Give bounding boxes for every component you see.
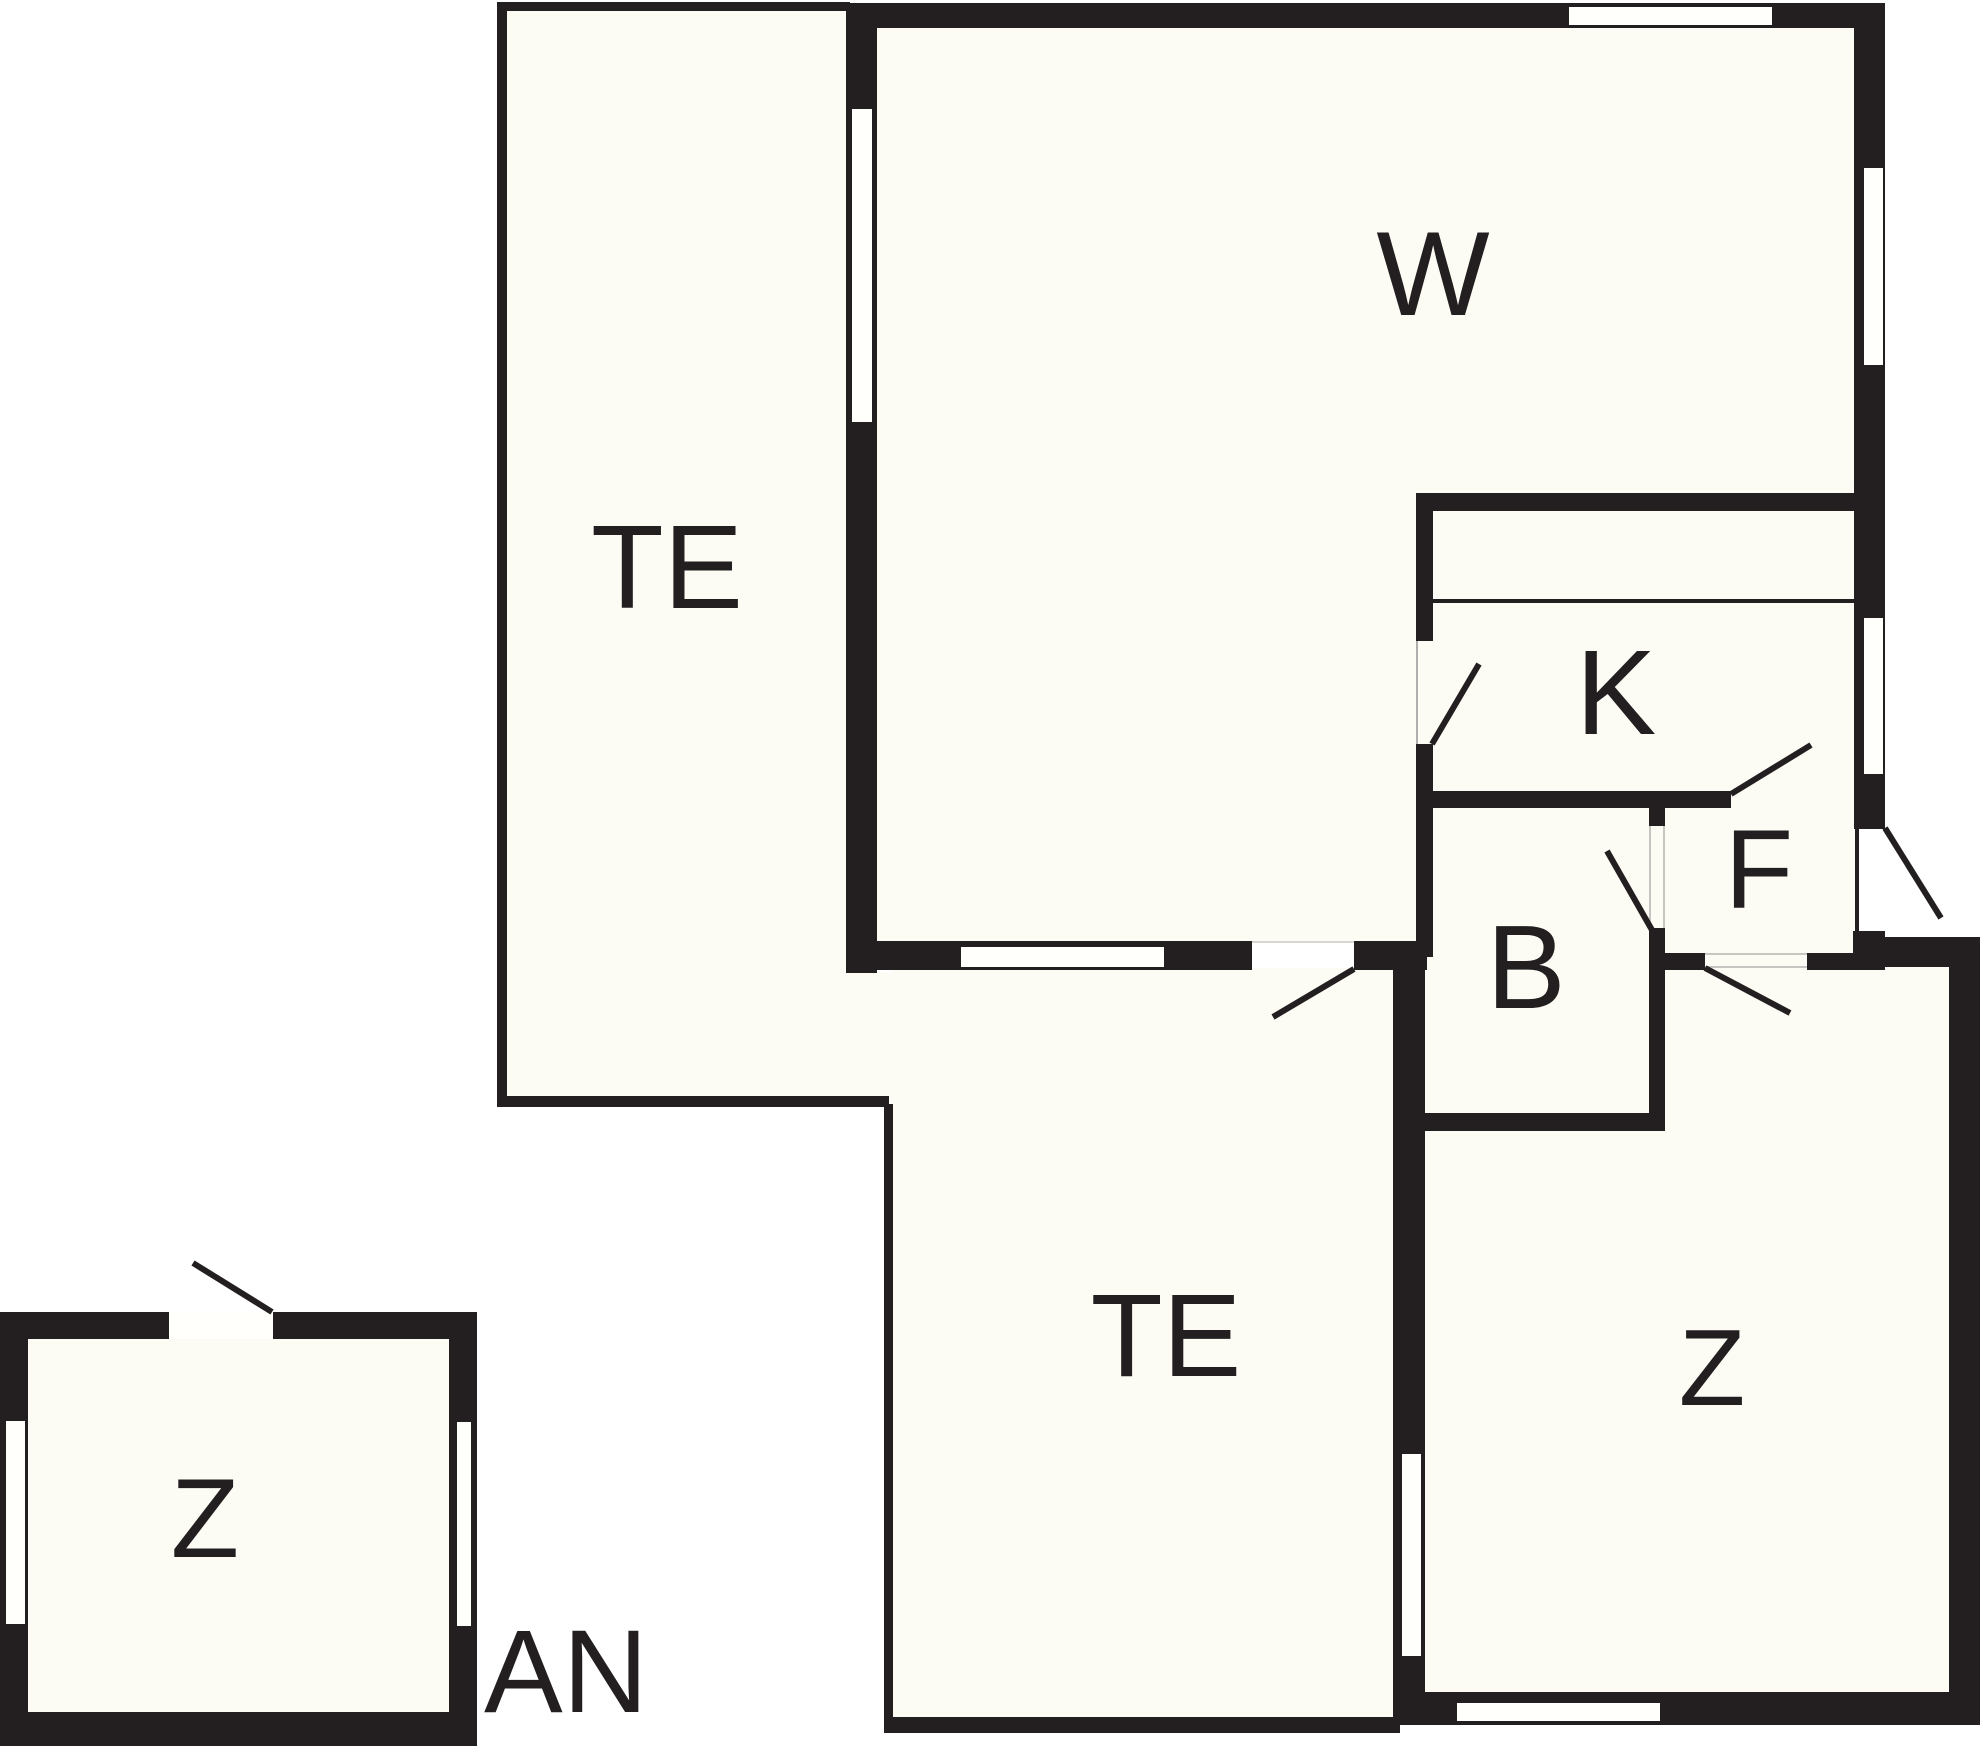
- svg-text:TE: TE: [1091, 1270, 1242, 1402]
- svg-text:Z: Z: [171, 1456, 239, 1581]
- svg-text:K: K: [1576, 624, 1657, 760]
- svg-text:AN: AN: [484, 1606, 648, 1738]
- svg-text:B: B: [1486, 901, 1565, 1034]
- svg-text:W: W: [1376, 207, 1489, 341]
- svg-text:TE: TE: [591, 501, 743, 634]
- svg-text:Z: Z: [1679, 1307, 1746, 1429]
- svg-text:F: F: [1725, 807, 1793, 932]
